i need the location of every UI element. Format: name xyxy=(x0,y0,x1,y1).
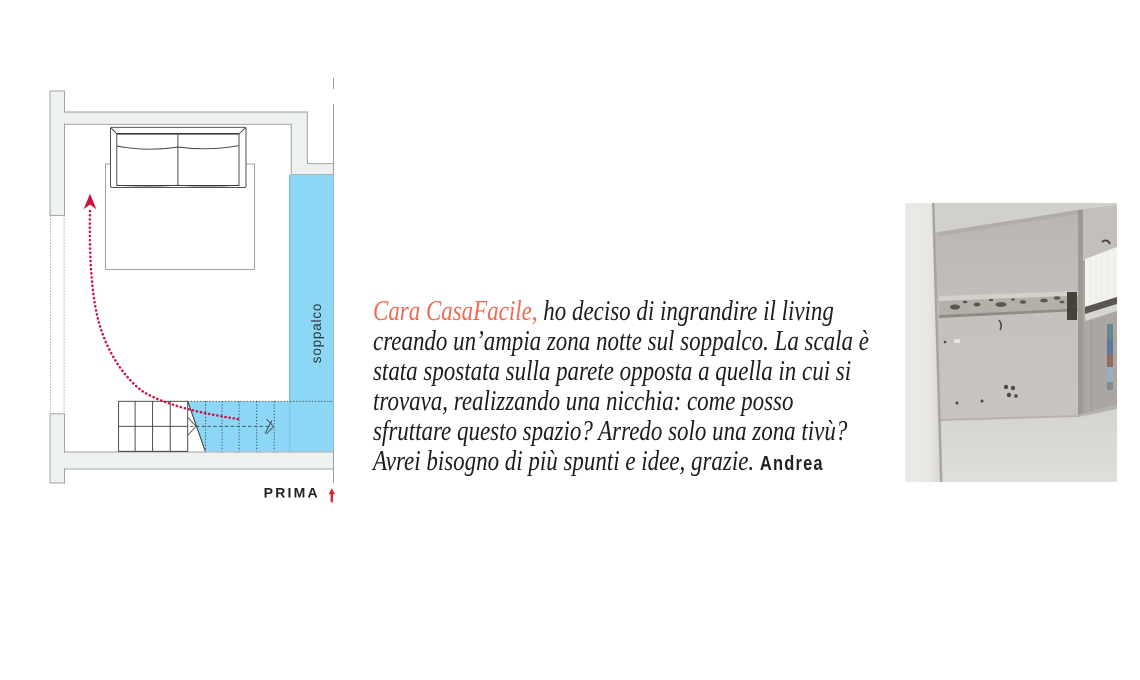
svg-text:PRIMA: PRIMA xyxy=(264,485,320,501)
svg-text:soppalco: soppalco xyxy=(309,303,324,363)
